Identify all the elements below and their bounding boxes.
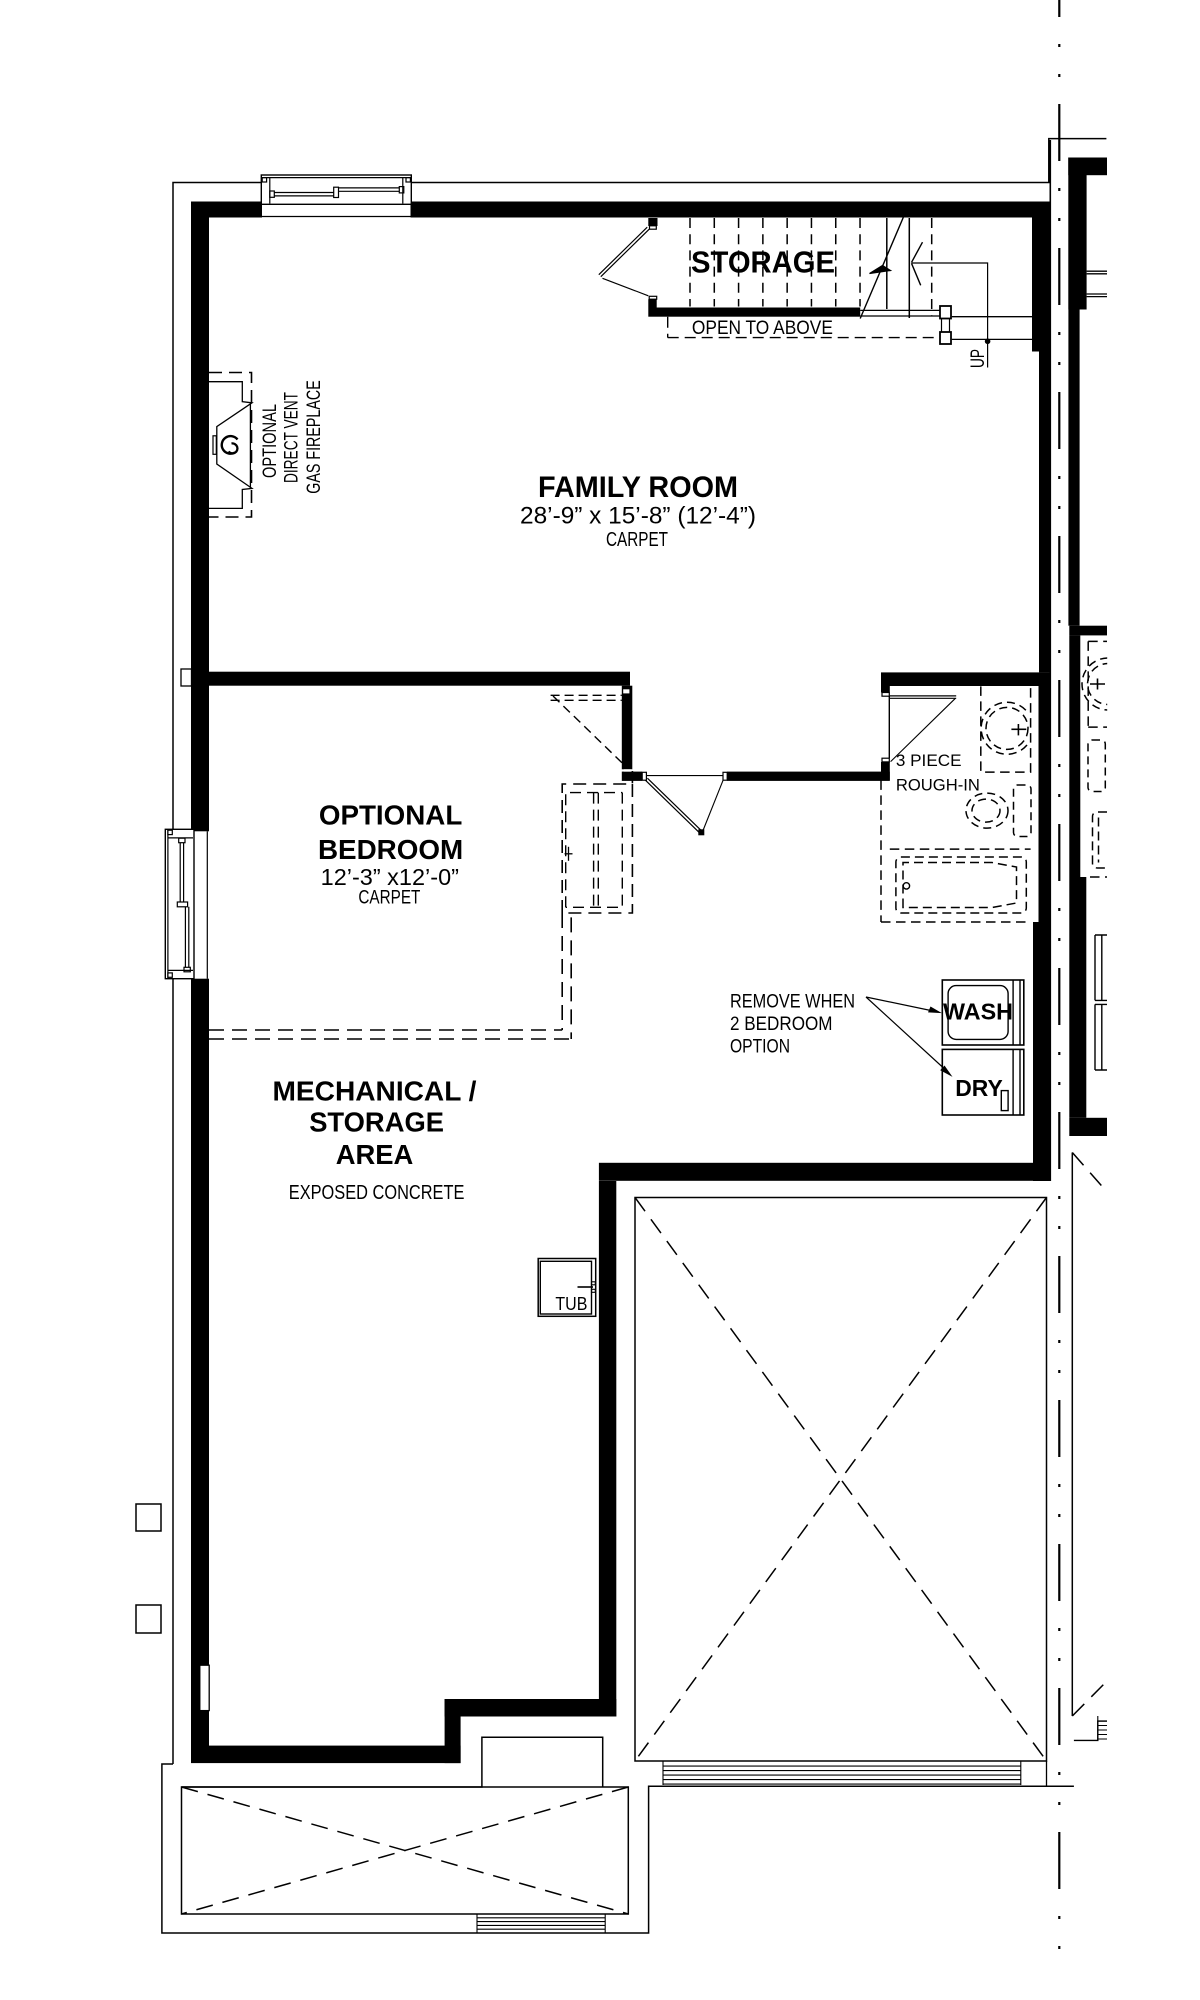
svg-text:STORAGE: STORAGE [309,1106,444,1137]
svg-text:GAS FIREPLACE: GAS FIREPLACE [304,380,325,494]
svg-text:OPTIONAL: OPTIONAL [319,800,463,831]
svg-text:STORAGE: STORAGE [691,244,835,279]
svg-text:2 BEDROOM: 2 BEDROOM [730,1013,833,1035]
svg-text:REMOVE WHEN: REMOVE WHEN [730,991,855,1013]
svg-text:CARPET: CARPET [358,887,420,908]
svg-text:CARPET: CARPET [606,529,668,551]
svg-text:ROUGH-IN: ROUGH-IN [896,776,980,795]
svg-text:OPTION: OPTION [730,1036,790,1058]
svg-text:FAMILY ROOM: FAMILY ROOM [538,471,738,504]
svg-text:DIRECT VENT: DIRECT VENT [281,392,302,483]
svg-text:28’-9” x 15’-8” (12’-4”): 28’-9” x 15’-8” (12’-4”) [520,503,756,530]
svg-text:MECHANICAL /: MECHANICAL / [273,1076,477,1107]
svg-text:EXPOSED CONCRETE: EXPOSED CONCRETE [289,1182,465,1204]
svg-text:WASH: WASH [943,999,1013,1025]
svg-text:UP: UP [968,349,989,368]
svg-text:OPTIONAL: OPTIONAL [260,404,281,478]
svg-text:AREA: AREA [336,1139,414,1170]
svg-text:3 PIECE: 3 PIECE [896,751,962,770]
svg-text:12’-3” x12’-0”: 12’-3” x12’-0” [321,864,459,890]
svg-text:BEDROOM: BEDROOM [318,834,463,865]
svg-text:OPEN TO ABOVE: OPEN TO ABOVE [692,318,833,339]
svg-text:DRY: DRY [955,1075,1003,1101]
svg-text:TUB: TUB [555,1293,587,1314]
